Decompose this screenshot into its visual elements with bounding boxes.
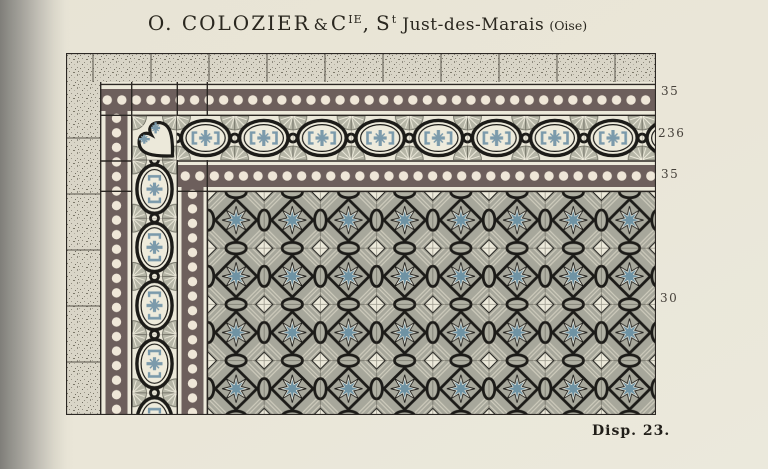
title-saint-superscript: t [392,13,397,26]
plate-caption: Disp. 23. [592,423,670,439]
catalog-page: O. COLOZIER&CIE, St Just-des-Marais (Ois… [0,0,768,469]
title-saint-base: S [376,11,392,35]
page-gutter-shadow [0,0,74,469]
dimension-label-outer-band: 35 [661,84,679,98]
title-company: O. COLOZIER [148,11,311,35]
plate-title: O. COLOZIER&CIE, St Just-des-Marais (Ois… [95,11,640,35]
title-cie-base: C [331,11,348,35]
title-region: (Oise) [549,18,587,33]
title-separator: , [363,11,371,35]
dimension-label-frieze: 236 [658,126,685,140]
field-carpet-pattern [208,192,656,415]
title-cie-superscript: IE [348,13,362,26]
tile-design-plate [66,53,656,415]
title-ampersand: & [311,15,331,34]
frieze-corner-medallion [133,116,185,168]
dimension-label-field-tile: 30 [660,291,678,305]
title-place: Just-des-Marais [402,15,544,35]
dimension-label-inner-band: 35 [661,167,679,181]
